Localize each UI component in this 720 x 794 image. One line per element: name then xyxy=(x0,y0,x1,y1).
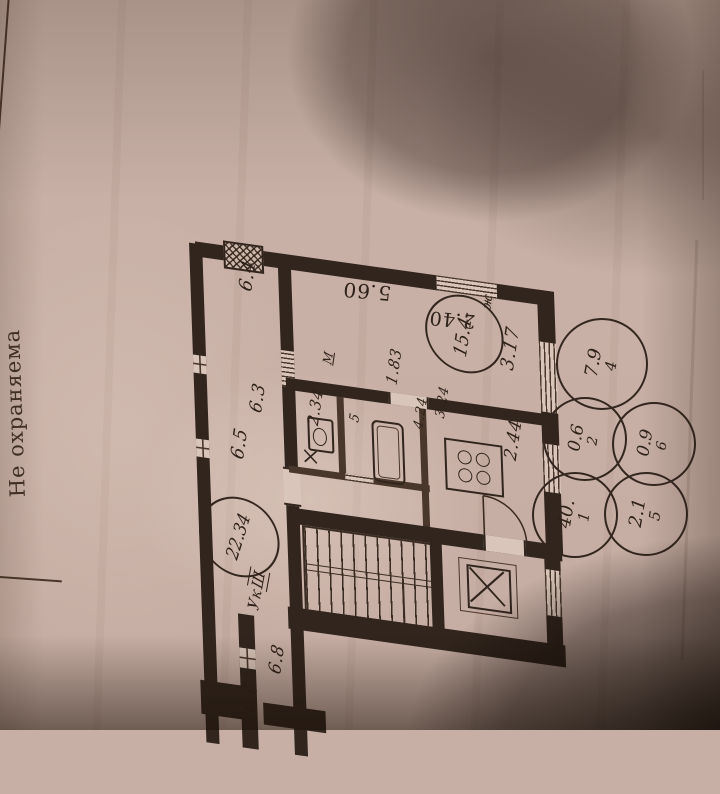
window-right-upper xyxy=(539,341,559,415)
room-number: 4 xyxy=(603,360,620,372)
room-number: 2 xyxy=(586,435,602,446)
page-bleedthrough-line xyxy=(702,70,704,200)
wall-tick xyxy=(196,438,210,458)
dimension-label: 1.83 xyxy=(383,335,406,397)
stair-landing-line xyxy=(305,563,434,588)
dimension-label: 6.4 xyxy=(236,252,260,300)
dimension-label: 5.60 xyxy=(336,279,398,304)
living-area-value: 15.4- xyxy=(452,309,477,359)
wall-tick xyxy=(193,354,207,374)
room-number: 5 xyxy=(647,510,664,522)
dimension-label: 6.3 xyxy=(247,376,270,420)
stove-icon xyxy=(444,438,504,498)
wall-right-corner xyxy=(537,289,556,343)
room-number-label: 5 xyxy=(347,406,363,429)
door-swing-arc xyxy=(482,495,528,545)
door-opening-hall xyxy=(345,473,373,484)
corridor-area-value: 22.34 xyxy=(224,511,255,563)
sink-icon xyxy=(302,447,319,465)
wall-wc-bath xyxy=(336,397,346,480)
room-number: 6 xyxy=(655,440,671,451)
radiator-mark: М xyxy=(321,345,336,370)
living-area-suffix: ж. xyxy=(480,285,497,314)
area-circle-room5: 2.1 5 xyxy=(604,472,688,556)
dimension-label: 6.6 xyxy=(240,675,263,719)
stair-flight-divider xyxy=(402,579,406,623)
stair-label: УкШ xyxy=(245,563,269,617)
wall-stub-right xyxy=(263,702,326,733)
window-lower-room xyxy=(545,569,563,617)
wall-stair-right xyxy=(430,539,445,633)
vent-shaft-icon xyxy=(466,564,512,614)
area-circle-room4: 7.9 4 xyxy=(556,318,648,410)
room-number: 1 xyxy=(576,511,593,523)
wall-tick xyxy=(239,647,256,669)
dimension-label: 6.8 xyxy=(266,636,289,684)
dimension-label: 3.24 xyxy=(433,377,453,427)
dimension-label: 6.5 xyxy=(228,420,252,468)
floor-plan: 6.4 6.5 6.3 6.8 6.6 5.60 2.40 3.17 1.83 … xyxy=(185,242,577,794)
bathtub-icon xyxy=(371,419,405,485)
